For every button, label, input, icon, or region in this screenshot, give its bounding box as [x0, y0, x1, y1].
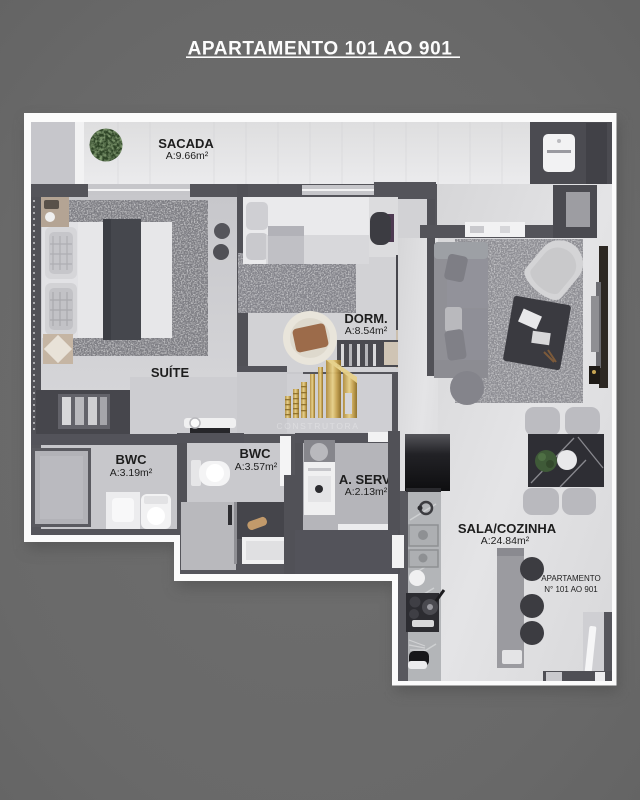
svg-text:A. SERV.: A. SERV.	[339, 472, 393, 487]
svg-text:SALA/COZINHA: SALA/COZINHA	[458, 521, 557, 536]
svg-text:CONSTRUTORA: CONSTRUTORA	[276, 421, 359, 431]
svg-text:A:3.19m²: A:3.19m²	[110, 467, 153, 479]
svg-text:N° 101 AO 901: N° 101 AO 901	[544, 585, 598, 594]
svg-text:APARTAMENTO: APARTAMENTO	[541, 574, 600, 583]
svg-text:APARTAMENTO 101 AO 901: APARTAMENTO 101 AO 901	[188, 39, 453, 60]
svg-text:A:3.57m²: A:3.57m²	[235, 461, 278, 473]
svg-text:BWC: BWC	[115, 452, 147, 467]
svg-text:A:2.13m²: A:2.13m²	[345, 486, 388, 498]
svg-text:BWC: BWC	[239, 446, 271, 461]
svg-text:SACADA: SACADA	[158, 136, 214, 151]
svg-text:A:9.66m²: A:9.66m²	[166, 150, 209, 162]
svg-text:DORM.: DORM.	[344, 311, 387, 326]
svg-text:A:8.54m²: A:8.54m²	[345, 325, 388, 337]
svg-text:A:24.84m²: A:24.84m²	[481, 535, 530, 547]
